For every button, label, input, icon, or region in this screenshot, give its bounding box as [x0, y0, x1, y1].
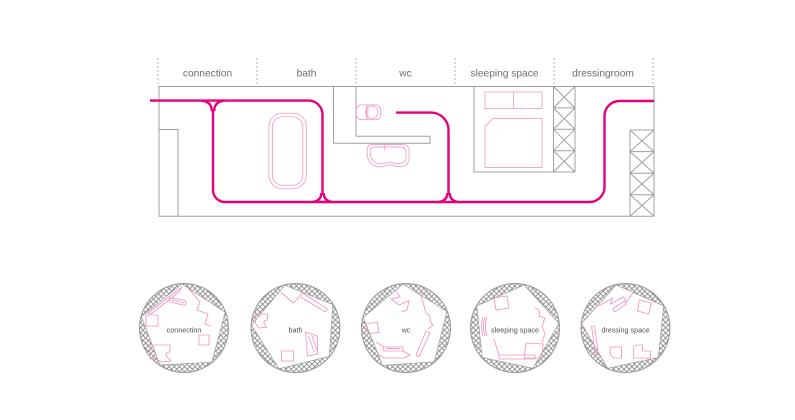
svg-text:connection: connection — [183, 69, 232, 80]
svg-text:bath: bath — [289, 326, 303, 335]
svg-text:sleeping space: sleeping space — [471, 69, 539, 80]
svg-text:dressing space: dressing space — [601, 326, 649, 335]
svg-text:sleeping space: sleeping space — [491, 326, 539, 335]
svg-text:wc: wc — [401, 326, 411, 335]
svg-text:dressingroom: dressingroom — [572, 69, 634, 80]
svg-text:bath: bath — [297, 69, 317, 80]
svg-text:wc: wc — [398, 69, 411, 80]
svg-text:connection: connection — [167, 326, 202, 335]
